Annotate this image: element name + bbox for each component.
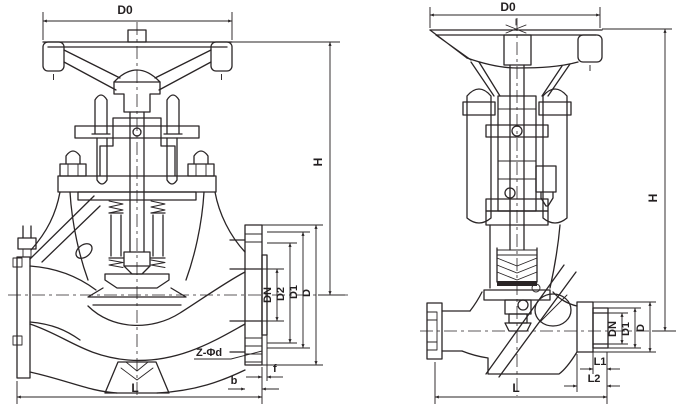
right-weld-end-boss [577, 302, 593, 352]
dim-label-d0-left: D0 [117, 3, 133, 17]
drawing-sheet: D0 H DN D2 D1 D Z-Φd b f [0, 0, 693, 420]
right-valve: D0 H DN D1 D L1 L2 L [420, 0, 676, 404]
left-valve-handwheel [43, 30, 232, 112]
dim-label-h-right: H [646, 194, 660, 203]
dim-label-d2-left: D2 [275, 287, 287, 301]
dim-label-l1: L1 [594, 356, 607, 368]
left-valve-bonnet [58, 151, 216, 200]
dim-label-l-left: L [131, 381, 138, 395]
dim-label-h-left: H [311, 158, 325, 167]
right-socket-end [593, 308, 608, 348]
left-valve-centerlines [8, 22, 348, 398]
dim-label-l2: L2 [588, 373, 601, 385]
dim-label-z-phi-d: Z-Φd [196, 347, 222, 359]
dim-label-b: b [231, 375, 238, 387]
dim-label-d-left: D [301, 289, 313, 297]
right-valve-packing [484, 225, 560, 331]
left-valve: D0 H DN D2 D1 D Z-Φd b f [8, 3, 348, 404]
dim-label-l-right: L [512, 381, 519, 395]
left-valve-body [13, 192, 267, 393]
dim-label-dn-right: DN [607, 321, 619, 337]
dim-label-f: f [273, 363, 277, 375]
dim-label-d1-left: D1 [288, 285, 300, 299]
dim-label-d1-right: D1 [620, 322, 632, 336]
valve-drawing-canvas: D0 H DN D2 D1 D Z-Φd b f [0, 0, 693, 420]
left-inlet-flange [17, 257, 30, 378]
dim-label-d0-right: D0 [500, 0, 516, 14]
dim-label-d-right: D [635, 324, 647, 332]
dim-label-dn-left: DN [262, 287, 274, 303]
right-valve-handwheel [430, 19, 602, 96]
